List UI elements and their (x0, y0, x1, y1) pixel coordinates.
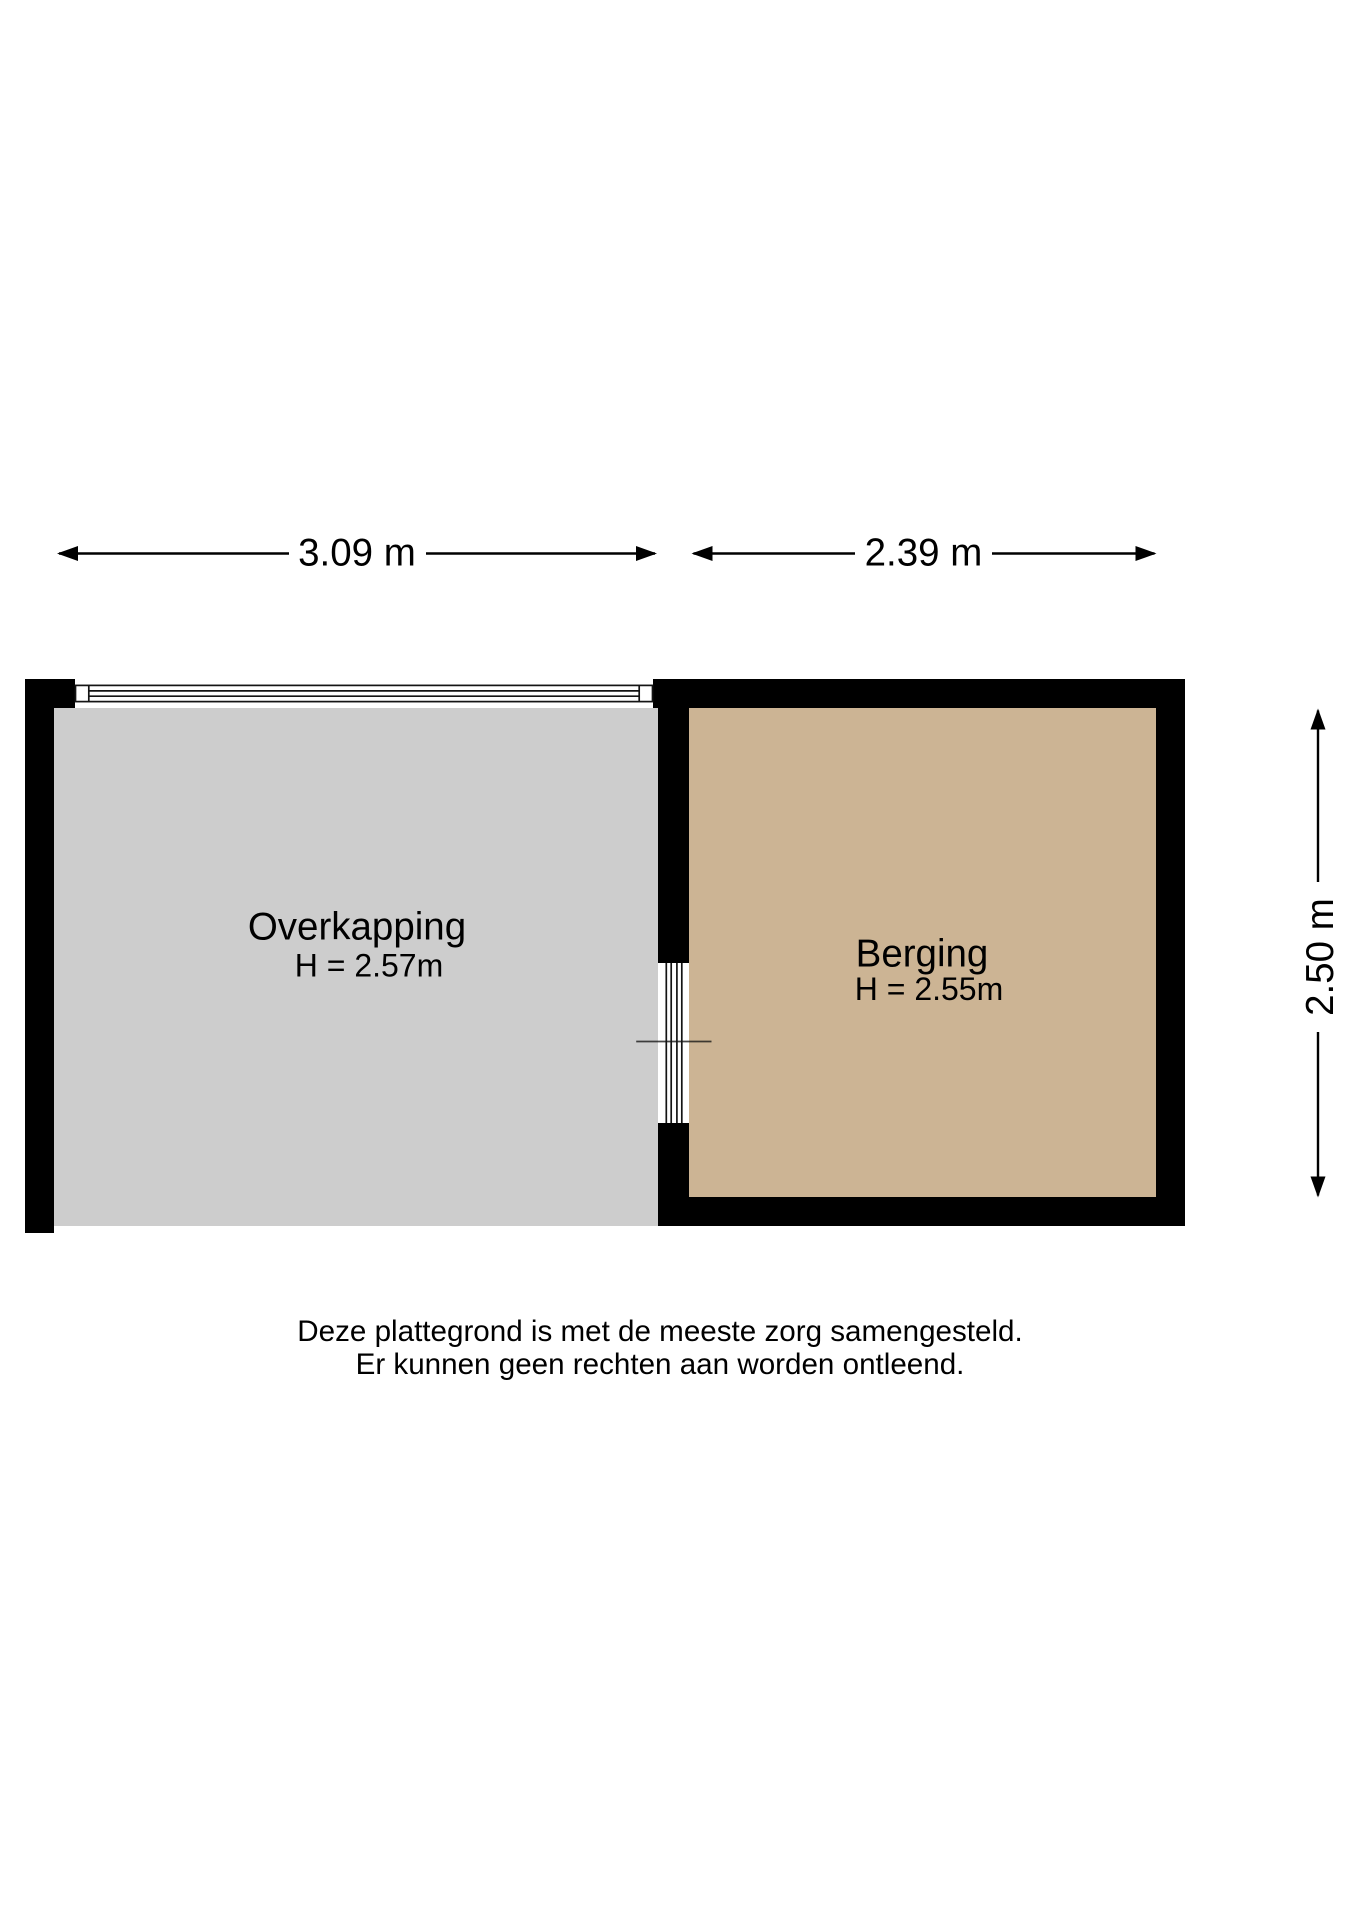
svg-text:Deze plattegrond is met de mee: Deze plattegrond is met de meeste zorg s… (297, 1315, 1022, 1348)
svg-text:H = 2.57m: H = 2.57m (295, 948, 444, 984)
svg-text:Er kunnen geen rechten aan wor: Er kunnen geen rechten aan worden ontlee… (356, 1348, 965, 1381)
svg-text:2.50 m: 2.50 m (1299, 898, 1342, 1016)
svg-text:H = 2.55m: H = 2.55m (855, 971, 1004, 1007)
svg-text:Overkapping: Overkapping (248, 906, 466, 949)
svg-text:3.09 m: 3.09 m (298, 532, 416, 575)
svg-text:Berging: Berging (856, 933, 989, 976)
svg-text:2.39 m: 2.39 m (865, 532, 983, 575)
